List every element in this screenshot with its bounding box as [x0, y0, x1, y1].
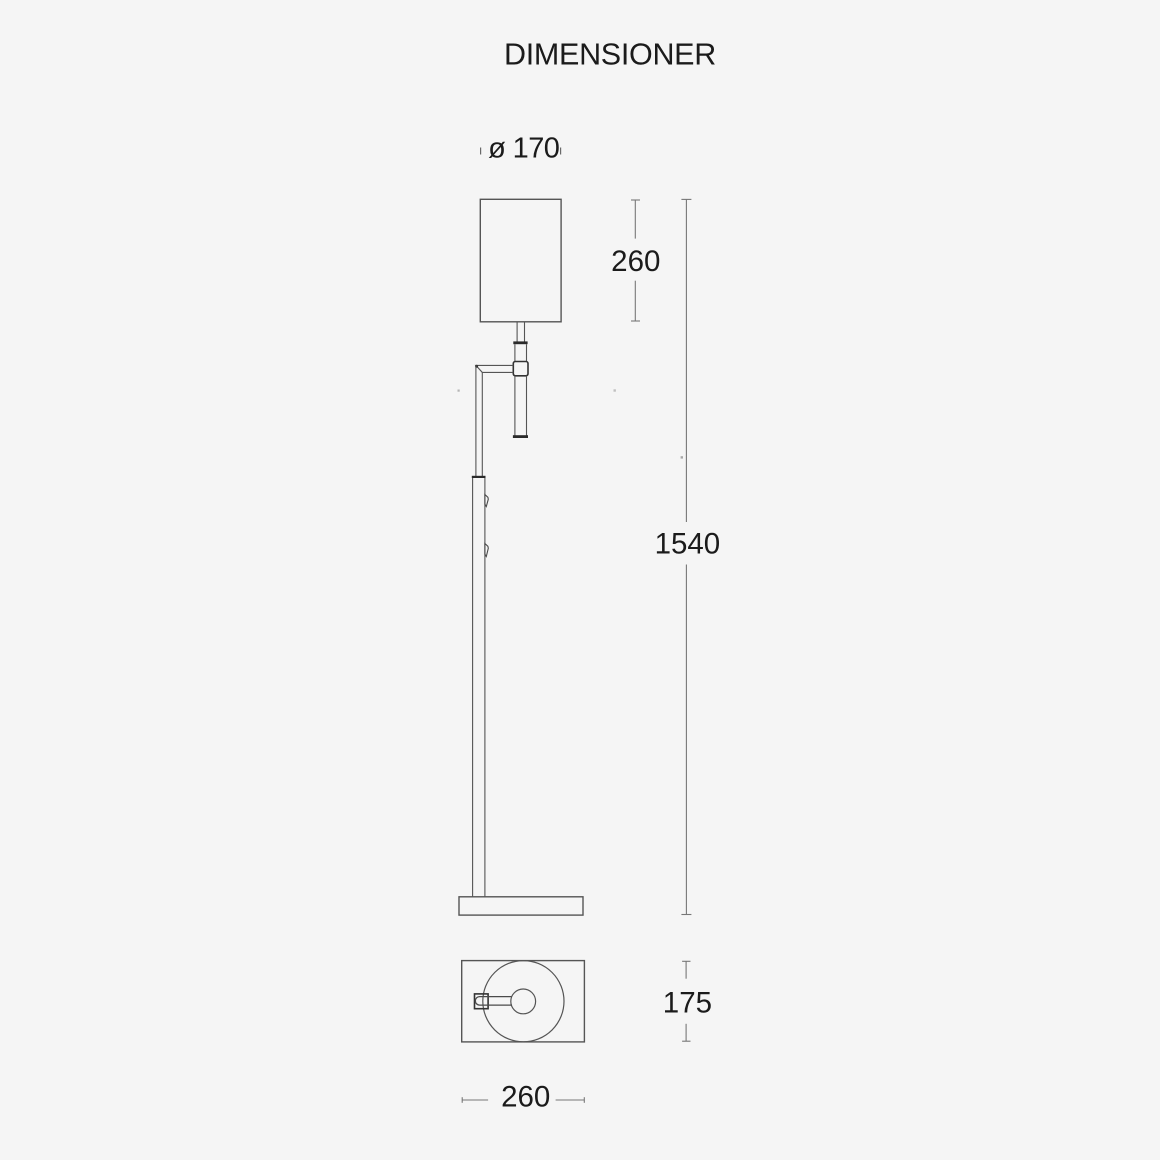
svg-text:175: 175 — [663, 987, 712, 1020]
svg-text:ø 170: ø 170 — [488, 133, 559, 165]
svg-text:DIMENSIONER: DIMENSIONER — [504, 38, 716, 72]
svg-text:260: 260 — [611, 245, 660, 278]
svg-text:1540: 1540 — [655, 528, 721, 561]
svg-text:260: 260 — [501, 1080, 550, 1113]
